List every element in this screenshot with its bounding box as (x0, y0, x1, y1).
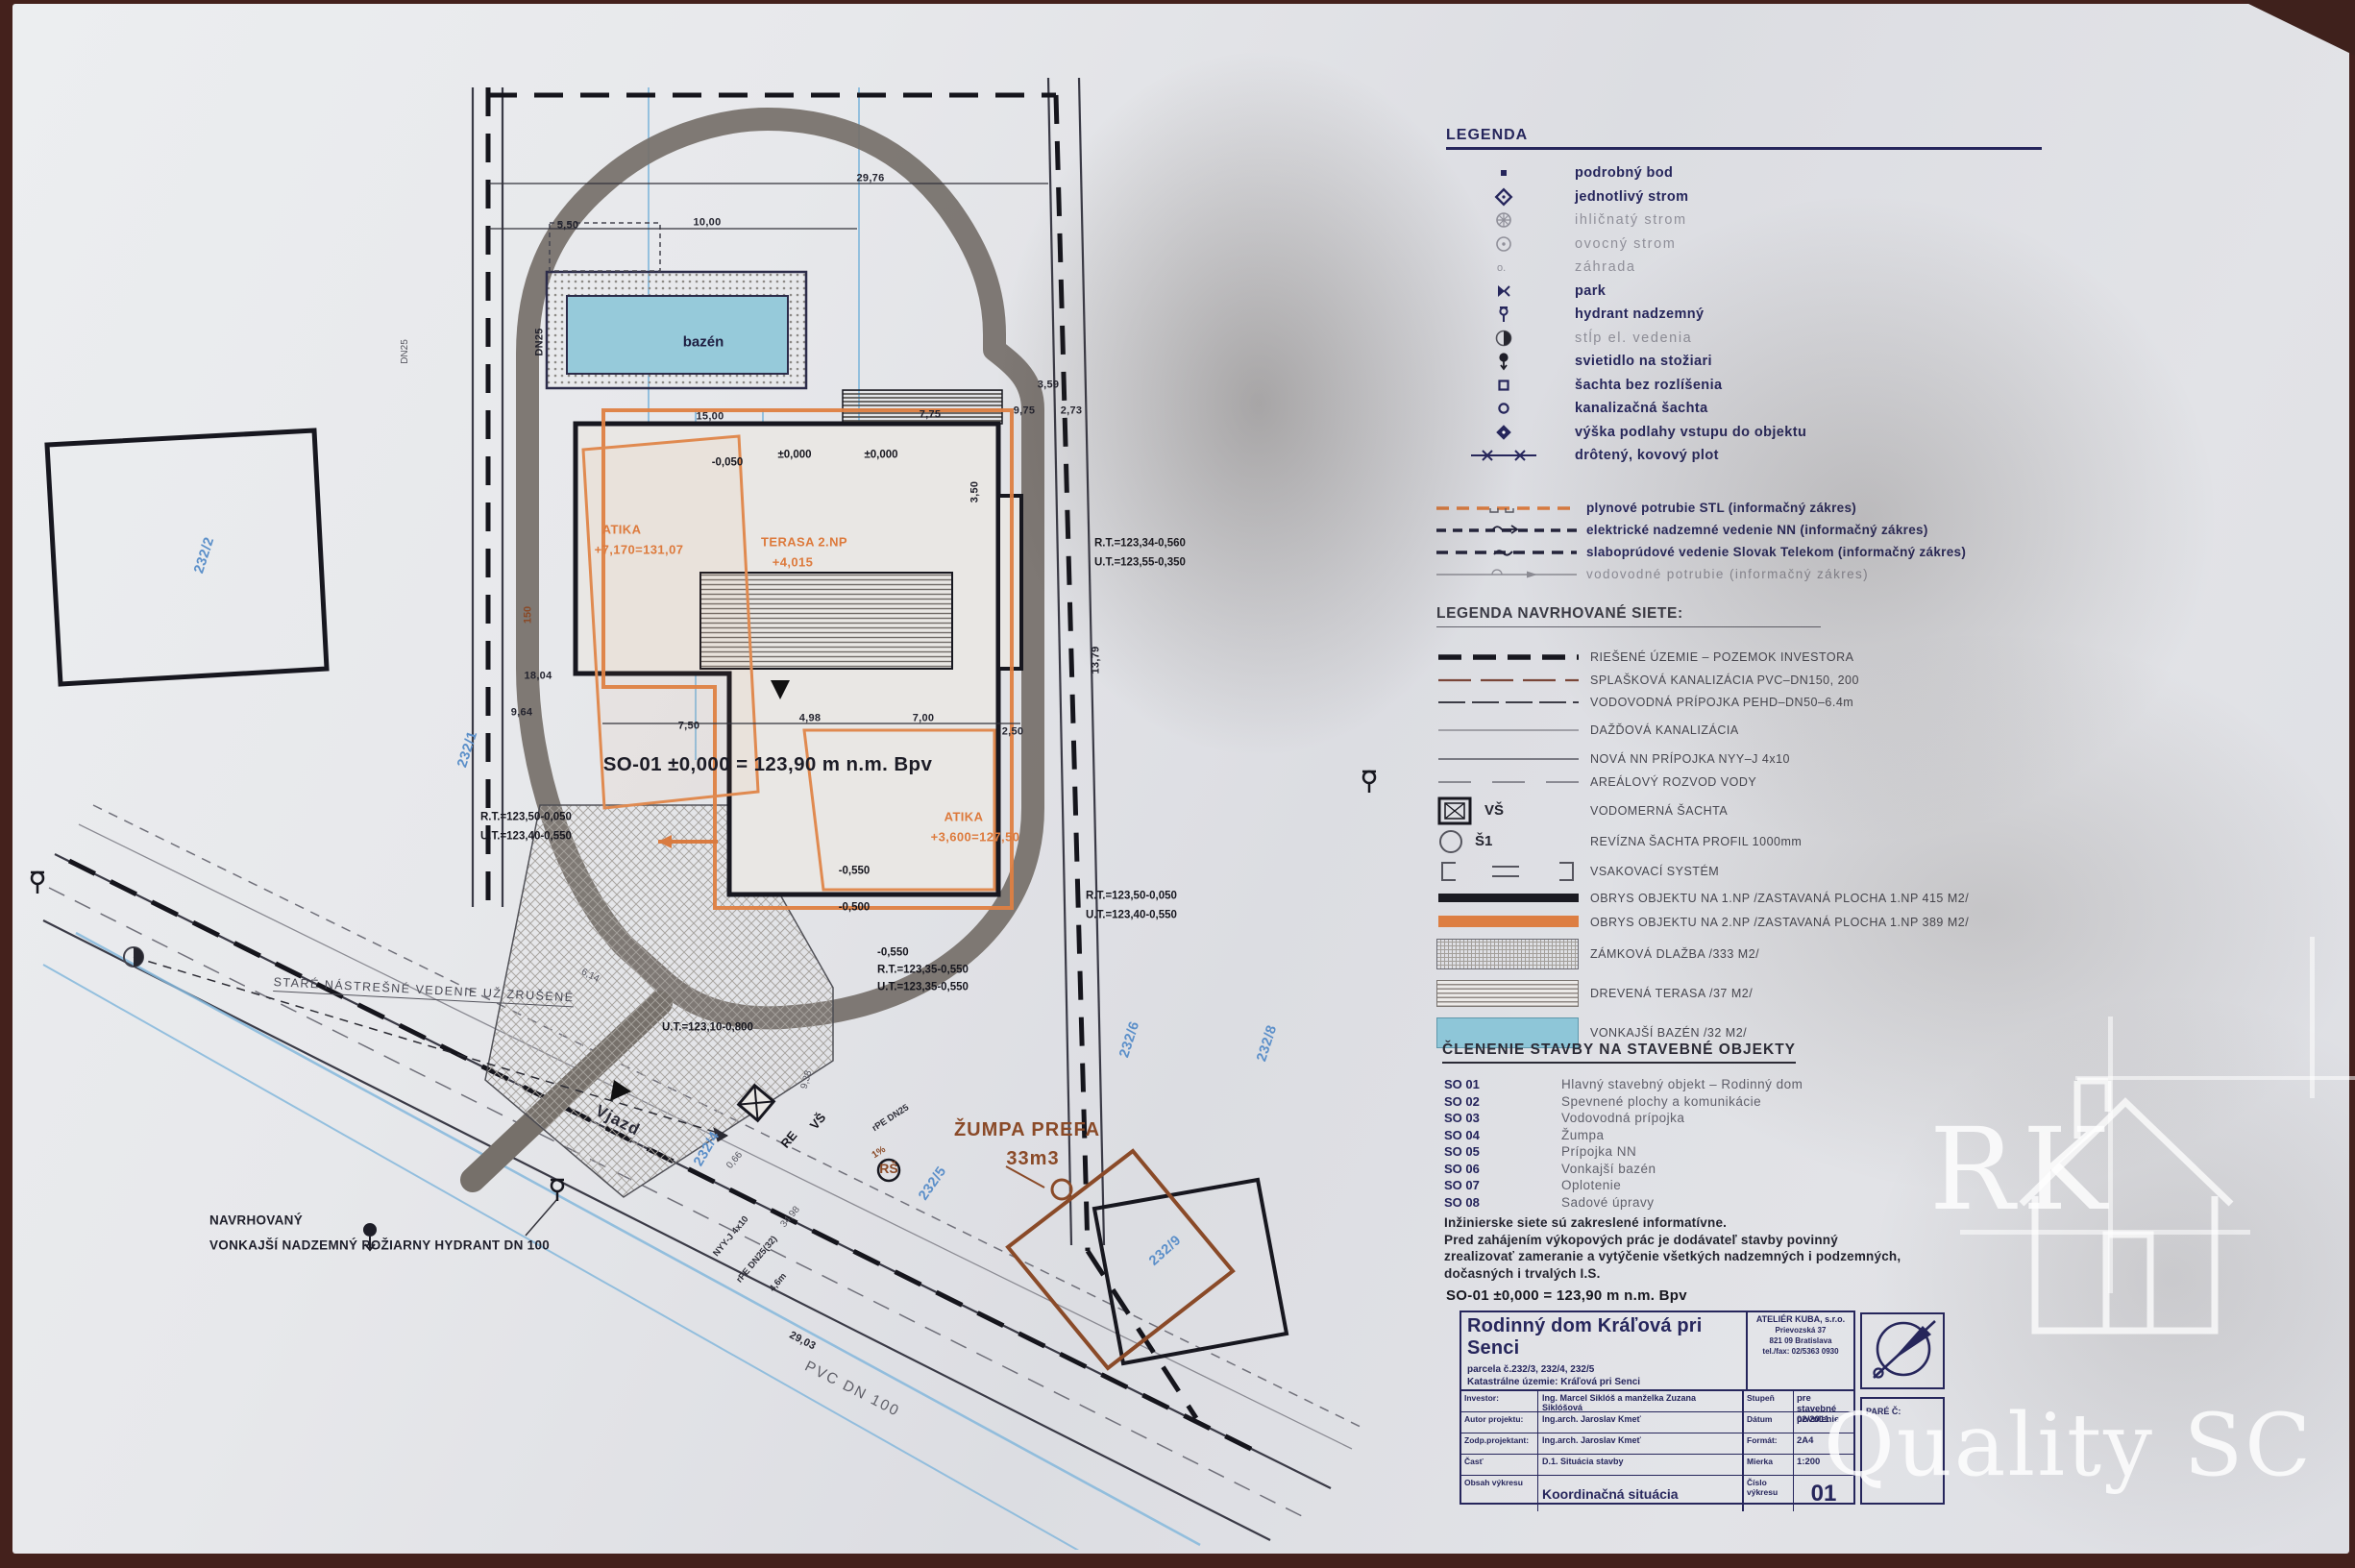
proposed-legend-item: NOVÁ NN PRÍPOJKA NYY–J 4x10 (1436, 747, 1969, 770)
legend-item: jednotlivý strom (1433, 185, 1806, 209)
legend-item-label: drôtený, kovový plot (1575, 448, 1719, 463)
drawing-number: 01 (1794, 1476, 1853, 1511)
proposed-legend-label: VONKAJŠÍ BAZÉN /32 M2/ (1590, 1026, 1747, 1040)
shaft-square-icon (1433, 375, 1575, 396)
drawing-content-name: Koordinačná situácia (1538, 1476, 1744, 1511)
so-code: SO 02 (1444, 1094, 1561, 1109)
structure-objects-title: ČLENENIE STAVBY NA STAVEBNÉ OBJEKTY (1442, 1041, 1796, 1064)
hatch-lines-swatch (1436, 980, 1590, 1007)
legend-item-label: výška podlahy vstupu do objektu (1575, 425, 1806, 440)
proposed-legend-item: VŠVODOMERNÁ ŠACHTA (1436, 795, 1969, 826)
bar-black-swatch (1436, 894, 1590, 903)
proposed-legend-label: SPLAŠKOVÁ KANALIZÁCIA PVC–DN150, 200 (1590, 674, 1859, 687)
telekom-line-sample (1435, 546, 1586, 559)
proposed-networks-title: LEGENDA NAVRHOVANÉ SIETE: (1436, 605, 1821, 627)
pare-number-box: PARÉ Č: (1860, 1397, 1945, 1505)
datum-line: SO-01 ±0,000 = 123,90 m n.m. Bpv (1446, 1287, 1687, 1304)
legend-item-label: hydrant nadzemný (1575, 306, 1705, 322)
line-legend: plynové potrubie STL (informačný zákres)… (1435, 497, 1966, 585)
structure-object-row: SO 08Sadové úpravy (1444, 1194, 1803, 1212)
parcel-line: parcela č.232/3, 232/4, 232/5 (1467, 1364, 1740, 1375)
so-code: SO 08 (1444, 1195, 1561, 1210)
legend-item-label: ihličnatý strom (1575, 212, 1687, 228)
legend-item: svietidlo na stožiari (1433, 350, 1806, 374)
legend-item-label: park (1575, 283, 1606, 299)
proposed-legend-item: VODOVODNÁ PRÍPOJKA PEHD–DN50–6.4m (1436, 691, 1969, 713)
title-block-row: Investor: Ing. Marcel Siklóš a manželka … (1461, 1391, 1853, 1412)
note-paragraph: Inžinierske siete sú zakreslené informat… (1444, 1214, 1901, 1282)
power-pole-symbol (124, 947, 143, 967)
so-code: SO 05 (1444, 1144, 1561, 1159)
line-thin-swatch (1436, 725, 1590, 735)
note-line: Inžinierske siete sú zakreslené informat… (1444, 1214, 1901, 1232)
north-arrow-icon (1862, 1314, 1942, 1386)
svg-text:o.: o. (1497, 262, 1506, 274)
proposed-legend-item: OBRYS OBJEKTU NA 2.NP /ZASTAVANÁ PLOCHA … (1436, 910, 1969, 934)
structure-object-rows: SO 01Hlavný stavebný objekt – Rodinný do… (1444, 1076, 1803, 1211)
proposed-legend-label: REVÍZNA ŠACHTA PROFIL 1000mm (1590, 835, 1802, 848)
cadastre-line: Katastrálne územie: Kráľová pri Senci (1467, 1377, 1712, 1390)
park-icon (1433, 281, 1575, 302)
shaft-circle-icon (1433, 398, 1575, 419)
bar-orange-swatch (1436, 916, 1590, 928)
proposed-legend-label: RIEŠENÉ ÚZEMIE – POZEMOK INVESTORA (1590, 650, 1853, 664)
north-compass-box (1860, 1312, 1945, 1389)
legend-item-label: podrobný bod (1575, 165, 1673, 181)
project-title: Rodinný dom Kráľová pri Senci (1467, 1315, 1740, 1360)
proposed-network-items: RIEŠENÉ ÚZEMIE – POZEMOK INVESTORASPLAŠK… (1436, 646, 1969, 1053)
pare-label: PARÉ Č: (1866, 1407, 1901, 1416)
proposed-legend-item: ZÁMKOVÁ DLAŽBA /333 M2/ (1436, 934, 1969, 974)
elec-line-sample (1435, 524, 1586, 537)
proposed-legend-item: OBRYS OBJEKTU NA 1.NP /ZASTAVANÁ PLOCHA … (1436, 887, 1969, 910)
dash-bold-swatch (1436, 651, 1590, 663)
proposed-legend-item: DAŽĎOVÁ KANALIZÁCIA (1436, 713, 1969, 747)
garden-icon: o. (1433, 257, 1575, 278)
title-block-row: Autor projektu: Ing.arch. Jaroslav Kmeť … (1461, 1412, 1853, 1433)
structure-object-row: SO 02Spevnené plochy a komunikácie (1444, 1093, 1803, 1111)
point-square-icon (1433, 162, 1575, 184)
legend-item: park (1433, 280, 1806, 304)
legend-items: podrobný bodjednotlivý stromihličnatý st… (1433, 161, 1806, 468)
photographed-site-plan: 29,765,5010,0015,007,753,599,752,733,501… (0, 0, 2355, 1568)
line-brown-swatch (1436, 675, 1590, 685)
proposed-legend-label: OBRYS OBJEKTU NA 1.NP /ZASTAVANÁ PLOCHA … (1590, 892, 1969, 905)
title-block-row: Obsah výkresu Koordinačná situácia Číslo… (1461, 1476, 1853, 1511)
design-office-cell: ATELIÉR KUBA, s.r.o. Prievozská 37 821 0… (1748, 1312, 1853, 1389)
so-label: Sadové úpravy (1561, 1195, 1655, 1210)
line-dash-swatch (1436, 698, 1590, 707)
legend-item: podrobný bod (1433, 161, 1806, 185)
legend-item-label: svietidlo na stožiari (1575, 354, 1712, 369)
legend-item-label: ovocný strom (1575, 236, 1676, 252)
structure-object-row: SO 03Vodovodná prípojka (1444, 1110, 1803, 1127)
lamp-icon (1433, 351, 1575, 372)
proposed-legend-item: SPLAŠKOVÁ KANALIZÁCIA PVC–DN150, 200 (1436, 669, 1969, 691)
legend-item: výška podlahy vstupu do objektu (1433, 421, 1806, 445)
so-code: SO 03 (1444, 1111, 1561, 1125)
legend-item: drôtený, kovový plot (1433, 444, 1806, 468)
structure-object-row: SO 04Žumpa (1444, 1127, 1803, 1144)
proposed-legend-label: AREÁLOVÝ ROZVOD VODY (1590, 775, 1756, 789)
line-legend-label: vodovodné potrubie (informačný zákres) (1586, 567, 1869, 581)
proposed-legend-label: VODOVODNÁ PRÍPOJKA PEHD–DN50–6.4m (1590, 696, 1853, 709)
legend-item: o.záhrada (1433, 256, 1806, 280)
title-block-row: Zodp.projektant: Ing.arch. Jaroslav Kmeť… (1461, 1433, 1853, 1455)
line-legend-item: slaboprúdové vedenie Slovak Telekom (inf… (1435, 541, 1966, 563)
line-legend-label: slaboprúdové vedenie Slovak Telekom (inf… (1586, 545, 1966, 559)
legend-item-label: záhrada (1575, 259, 1636, 275)
street-lamp-symbol (363, 1223, 377, 1250)
proposed-legend-item: DREVENÁ TERASA /37 M2/ (1436, 974, 1969, 1013)
line-gap-swatch (1436, 777, 1590, 787)
proposed-legend-item: Š1REVÍZNA ŠACHTA PROFIL 1000mm (1436, 826, 1969, 856)
structure-object-row: SO 01Hlavný stavebný objekt – Rodinný do… (1444, 1076, 1803, 1093)
legend-item: kanalizačná šachta (1433, 397, 1806, 421)
so-code: SO 07 (1444, 1178, 1561, 1192)
swatch-tag: Š1 (1475, 833, 1492, 849)
so-label: Spevnené plochy a komunikácie (1561, 1094, 1761, 1109)
so-label: Vodovodná prípojka (1561, 1111, 1684, 1125)
legend-item: hydrant nadzemný (1433, 303, 1806, 327)
proposed-legend-item: AREÁLOVÝ ROZVOD VODY (1436, 770, 1969, 795)
line-legend-label: plynové potrubie STL (informačný zákres) (1586, 501, 1856, 515)
legend-item-label: šachta bez rozlíšenia (1575, 378, 1722, 393)
entry-level-icon (1433, 422, 1575, 443)
hydrant-symbol (1362, 772, 1376, 793)
so-code: SO 01 (1444, 1077, 1561, 1091)
water-line-sample (1435, 568, 1586, 581)
hydrant-icon (1433, 304, 1575, 325)
so-code: SO 04 (1444, 1128, 1561, 1142)
title-block-row: Časť D.1. Situácia stavby Mierka 1:200 (1461, 1455, 1853, 1476)
tree-diamond-icon (1433, 186, 1575, 208)
line-legend-item: elektrické nadzemné vedenie NN (informač… (1435, 519, 1966, 541)
brackets-swatch (1436, 859, 1590, 884)
note-line: dočasných i trvalých I.S. (1444, 1265, 1901, 1283)
fence-icon (1433, 445, 1575, 466)
tree-conifer-icon (1433, 209, 1575, 231)
proposed-legend-label: ZÁMKOVÁ DLAŽBA /333 M2/ (1590, 947, 1759, 961)
proposed-legend-label: VODOMERNÁ ŠACHTA (1590, 804, 1728, 818)
legend-item-label: kanalizačná šachta (1575, 401, 1708, 416)
gas-line-sample (1435, 502, 1586, 515)
line-legend-item: plynové potrubie STL (informačný zákres) (1435, 497, 1966, 519)
pool (547, 223, 806, 388)
so-label: Prípojka NN (1561, 1144, 1636, 1159)
hatch-cross-swatch (1436, 939, 1590, 969)
legend-title: LEGENDA (1446, 127, 2042, 150)
swatch-tag: VŠ (1484, 802, 1504, 819)
structure-object-row: SO 06Vonkajší bazén (1444, 1161, 1803, 1178)
legend-item: šachta bez rozlíšenia (1433, 374, 1806, 398)
pole-icon (1433, 328, 1575, 349)
note-line: zrealizovať zameranie a vytýčenie všetký… (1444, 1248, 1901, 1265)
legend-item: ovocný strom (1433, 233, 1806, 257)
line-solid-swatch (1436, 754, 1590, 764)
tree-fruit-icon (1433, 233, 1575, 255)
so-label: Hlavný stavebný objekt – Rodinný dom (1561, 1077, 1803, 1091)
line-legend-item: vodovodné potrubie (informačný zákres) (1435, 563, 1966, 585)
legend-item: ihličnatý strom (1433, 208, 1806, 233)
proposed-legend-item: RIEŠENÉ ÚZEMIE – POZEMOK INVESTORA (1436, 646, 1969, 669)
proposed-legend-label: OBRYS OBJEKTU NA 2.NP /ZASTAVANÁ PLOCHA … (1590, 916, 1969, 929)
proposed-legend-label: VSAKOVACÍ SYSTÉM (1590, 865, 1719, 878)
proposed-legend-label: DREVENÁ TERASA /37 M2/ (1590, 987, 1753, 1000)
hydrant-symbol (31, 872, 44, 894)
note-line: Pred zahájením výkopových prác je dodáva… (1444, 1232, 1901, 1249)
so-code: SO 06 (1444, 1162, 1561, 1176)
circle-s1-swatch: Š1 (1436, 827, 1590, 856)
legend-panel: LEGENDA podrobný bodjednotlivý stromihli… (1433, 127, 2057, 1314)
so-label: Vonkajší bazén (1561, 1162, 1656, 1176)
legend-item: stĺp el. vedenia (1433, 327, 1806, 351)
proposed-legend-label: DAŽĎOVÁ KANALIZÁCIA (1590, 723, 1739, 737)
structure-object-row: SO 07Oplotenie (1444, 1177, 1803, 1194)
proposed-legend-item: VSAKOVACÍ SYSTÉM (1436, 856, 1969, 887)
line-legend-label: elektrické nadzemné vedenie NN (informač… (1586, 523, 1928, 537)
so-label: Oplotenie (1561, 1178, 1621, 1192)
title-block: Rodinný dom Kráľová pri Senci parcela č.… (1460, 1311, 1855, 1505)
revision-shaft-symbol (878, 1160, 899, 1181)
vs-box-swatch: VŠ (1436, 796, 1590, 826)
proposed-legend-label: NOVÁ NN PRÍPOJKA NYY–J 4x10 (1590, 752, 1790, 766)
legend-item-label: stĺp el. vedenia (1575, 331, 1692, 346)
structure-object-row: SO 05Prípojka NN (1444, 1143, 1803, 1161)
legend-item-label: jednotlivý strom (1575, 189, 1688, 205)
paper-sheet: 29,765,5010,0015,007,753,599,752,733,501… (12, 4, 2349, 1554)
so-label: Žumpa (1561, 1128, 1605, 1142)
